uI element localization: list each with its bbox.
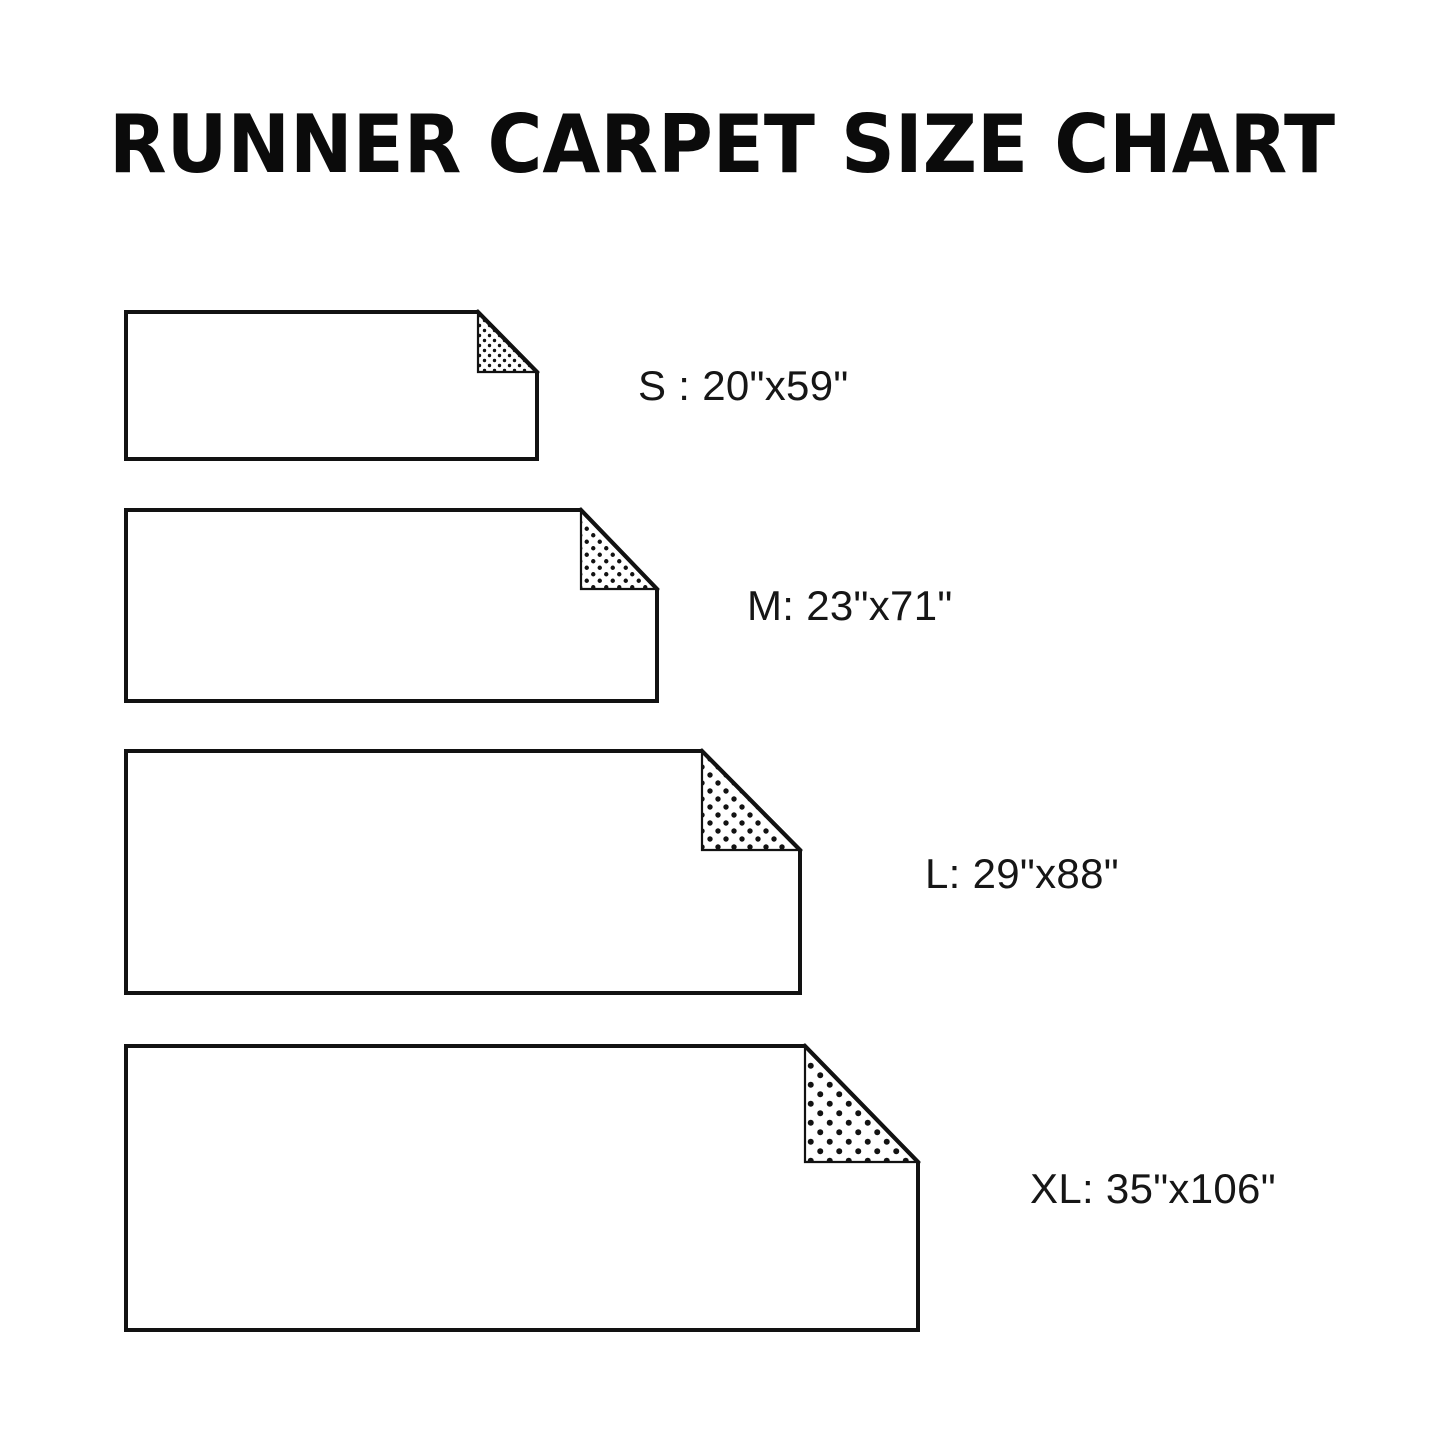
carpet-diagram: S : 20"x59"M: 23"x71"L: 29"x88"XL: 35"x1…	[0, 0, 1445, 1445]
size-label-s: S : 20"x59"	[638, 362, 849, 410]
size-label-m: M: 23"x71"	[747, 582, 953, 630]
size-label-l: L: 29"x88"	[925, 850, 1119, 898]
carpet-outline	[126, 1046, 918, 1330]
carpet-shape-s	[122, 308, 541, 463]
carpet-shape-m	[122, 506, 661, 705]
size-label-xl: XL: 35"x106"	[1030, 1165, 1276, 1213]
carpet-shape-l	[122, 747, 804, 997]
carpet-outline	[126, 510, 657, 701]
carpet-outline	[126, 751, 800, 993]
carpet-outline	[126, 312, 537, 459]
carpet-shape-xl	[122, 1042, 922, 1334]
